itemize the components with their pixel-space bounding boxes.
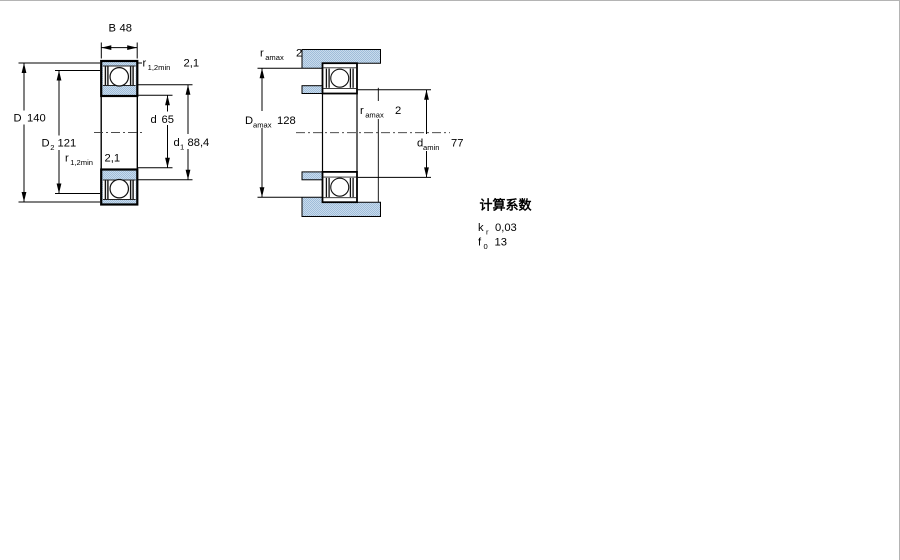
- label-r-subscript: 1,2min: [70, 158, 93, 167]
- label-ramax-mid: r amax 2: [360, 105, 401, 120]
- abutment-bearing-bottom: [323, 172, 358, 202]
- factor-f0-symbol: f: [478, 237, 482, 249]
- label-r12min-bottom: r 1,2min 2,1: [65, 152, 120, 167]
- dimension-d-outer: D 140: [13, 63, 101, 202]
- label-d1-subscript: 1: [180, 143, 184, 152]
- bearing-drawing-page: B 48 D 140 D 2 121 d: [0, 0, 900, 560]
- bearing-drawing-canvas: B 48 D 140 D 2 121 d: [0, 0, 900, 560]
- factor-kr: k r 0,03: [478, 222, 517, 237]
- label-damax-value: 128: [277, 115, 296, 127]
- label-d2-symbol: D: [42, 138, 50, 150]
- label-r-subscript: amax: [365, 111, 384, 120]
- label-d-bore-value: 65: [162, 114, 174, 126]
- label-r-symbol: r: [65, 152, 69, 164]
- cross-section-view: B 48 D 140 D 2 121 d: [13, 23, 213, 205]
- dimension-d1: d 1 88,4: [138, 85, 213, 180]
- label-d-outer-symbol: D: [14, 113, 22, 125]
- label-d2-value: 121: [58, 138, 77, 150]
- bearing-top-section: [101, 61, 137, 96]
- label-damin-value: 77: [451, 138, 463, 150]
- factor-kr-subscript: r: [486, 228, 489, 237]
- dimension-damax: D amax 128: [244, 68, 302, 197]
- shaft-shoulder-top: [302, 86, 323, 94]
- label-r-symbol: r: [360, 105, 364, 117]
- ball: [110, 180, 128, 198]
- label-damax-subscript: amax: [253, 121, 272, 130]
- label-b-value: 48: [120, 23, 132, 35]
- factor-f0: f 0 13: [478, 237, 507, 252]
- label-d-bore-symbol: d: [151, 114, 157, 126]
- label-r-value: 2: [296, 48, 302, 60]
- label-d2-subscript: 2: [50, 143, 54, 152]
- dimension-damin: d amin 77: [358, 90, 468, 178]
- factor-kr-symbol: k: [478, 222, 484, 234]
- label-r-value: 2,1: [105, 152, 121, 164]
- label-r-symbol: r: [143, 57, 147, 69]
- label-ramax-top: r amax 2: [260, 48, 302, 63]
- bearing-bottom-section: [101, 170, 137, 205]
- ball: [110, 68, 128, 86]
- shaft-shoulder-bottom: [302, 172, 323, 180]
- dimension-d-bore: d 65: [138, 95, 179, 168]
- calculation-factors: 计算系数 k r 0,03 f 0 13: [478, 198, 533, 252]
- factor-kr-value: 0,03: [495, 222, 517, 234]
- label-r-value: 2: [395, 105, 401, 117]
- label-d1-symbol: d: [174, 137, 180, 149]
- label-r12min-top: r 1,2min 2,1: [143, 57, 200, 72]
- ball: [331, 69, 349, 87]
- dimension-b: B 48: [101, 23, 137, 59]
- factor-f0-value: 13: [495, 237, 507, 249]
- label-r-value: 2,1: [184, 57, 200, 69]
- label-r-subscript: amax: [265, 53, 284, 62]
- label-r-symbol: r: [260, 48, 264, 60]
- abutment-bearing-top: [323, 63, 358, 93]
- label-r-subscript: 1,2min: [148, 63, 171, 72]
- label-b-symbol: B: [109, 23, 116, 35]
- dimension-d2: D 2 121: [41, 71, 101, 194]
- factor-f0-subscript: 0: [484, 242, 488, 251]
- label-d1-value: 88,4: [188, 137, 210, 149]
- label-d-outer-value: 140: [27, 113, 46, 125]
- calculation-factors-heading: 计算系数: [480, 198, 533, 213]
- abutment-view: D amax 128 d amin 77 r amax 2 r amax 2: [244, 48, 468, 217]
- ball: [331, 178, 349, 196]
- label-damin-subscript: amin: [423, 143, 439, 152]
- label-damax-symbol: D: [245, 115, 253, 127]
